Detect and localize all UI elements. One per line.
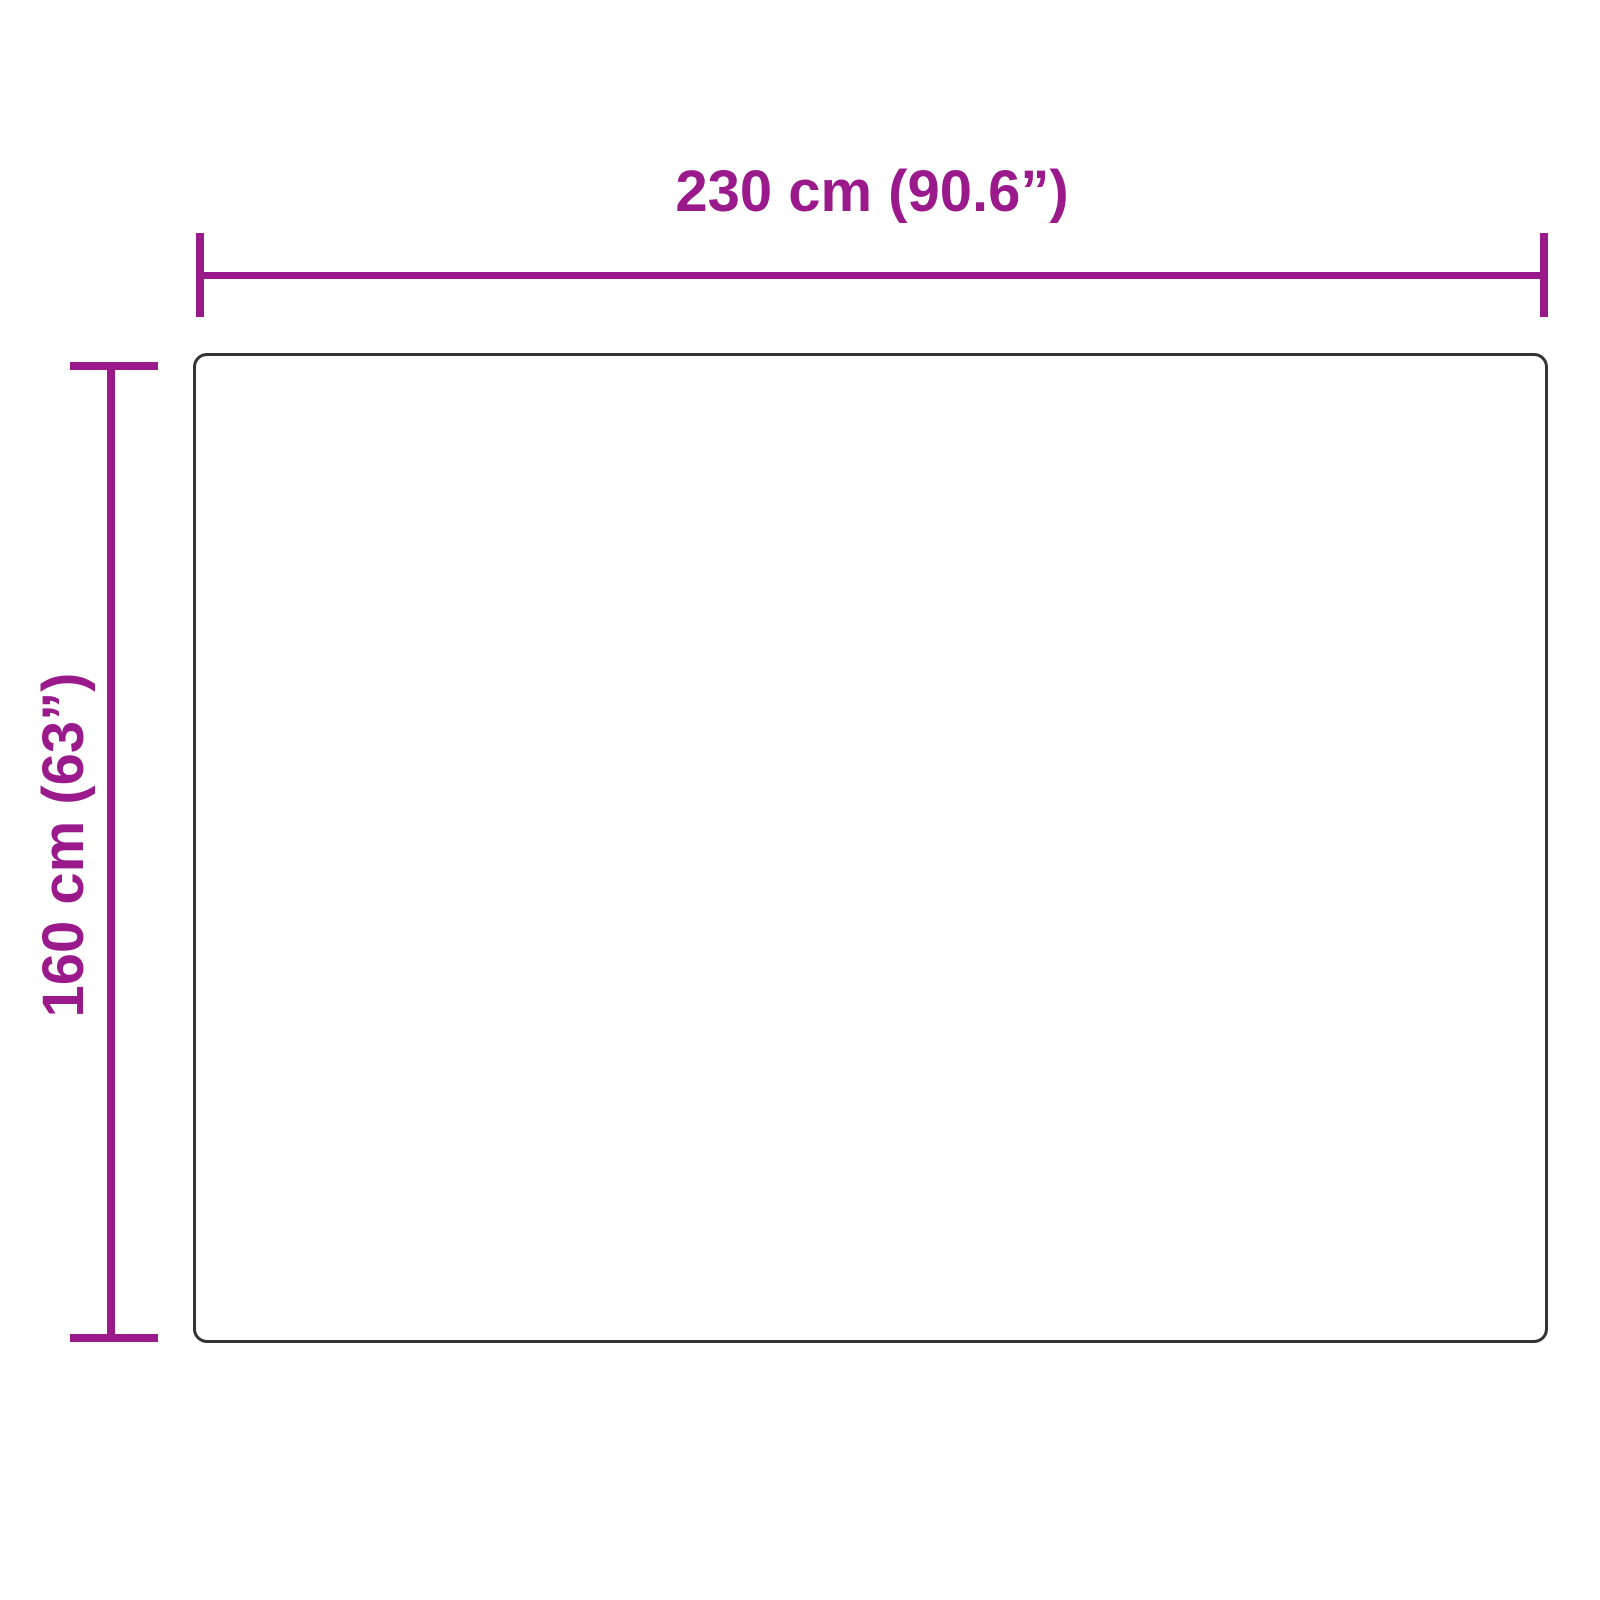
width-dimension-end-cap-right: [1540, 233, 1548, 317]
height-dimension-label: 160 cm (63”): [35, 673, 93, 1018]
width-dimension-end-cap-left: [196, 233, 204, 317]
product-dimension-diagram: 230 cm (90.6”) 160 cm (63”): [0, 0, 1600, 1600]
width-dimension-label: 230 cm (90.6”): [196, 163, 1548, 221]
height-dimension-end-cap-bottom: [70, 1334, 158, 1342]
height-dimension-line: [107, 362, 115, 1342]
width-dimension-line: [196, 272, 1548, 279]
product-outline: [193, 353, 1548, 1343]
height-dimension-end-cap-top: [70, 362, 158, 370]
